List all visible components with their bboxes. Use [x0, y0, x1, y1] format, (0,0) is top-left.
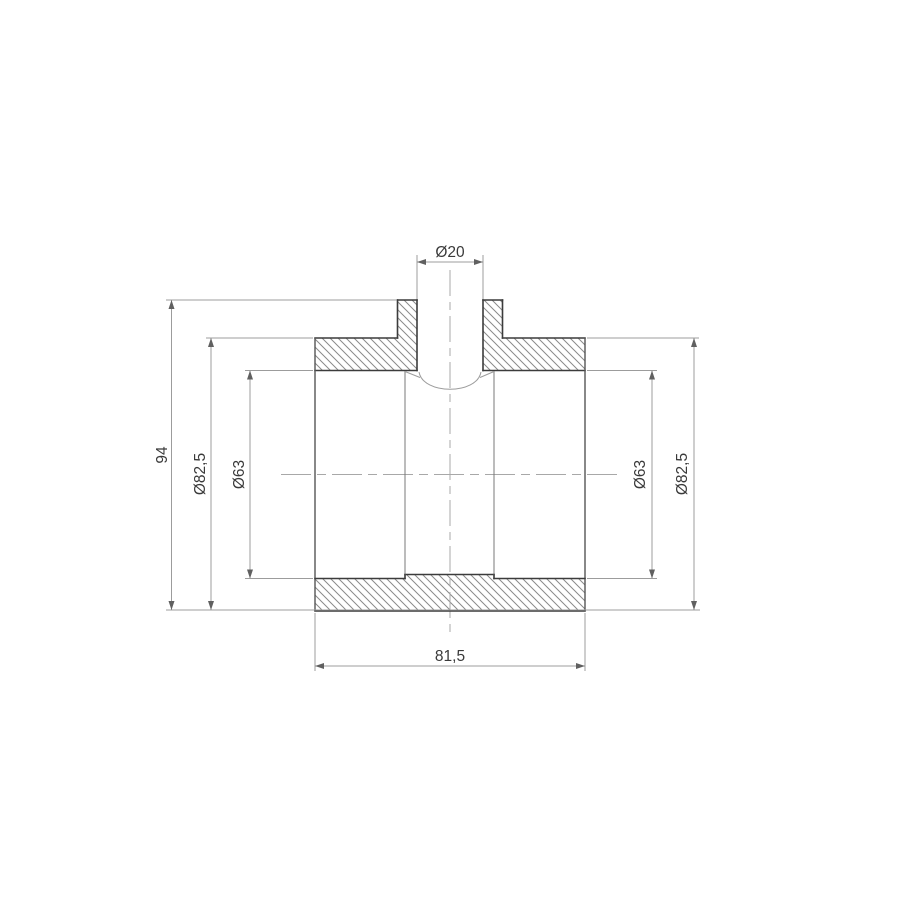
dim-label-outer-diameter-right: Ø82,5	[674, 453, 691, 495]
dim-label-port-diameter: Ø20	[435, 244, 465, 261]
dim-label-bore-diameter-right: Ø63	[632, 460, 649, 489]
dim-label-bore-diameter-left: Ø63	[231, 460, 248, 489]
dim-label-outer-diameter-left: Ø82,5	[192, 453, 209, 495]
drawing-canvas	[0, 0, 900, 900]
dim-label-body-length: 81,5	[435, 648, 465, 665]
dim-label-total-height: 94	[154, 446, 171, 464]
technical-drawing: Ø20 94 Ø82,5 Ø63 Ø63 Ø82,5 81,5	[0, 0, 900, 900]
